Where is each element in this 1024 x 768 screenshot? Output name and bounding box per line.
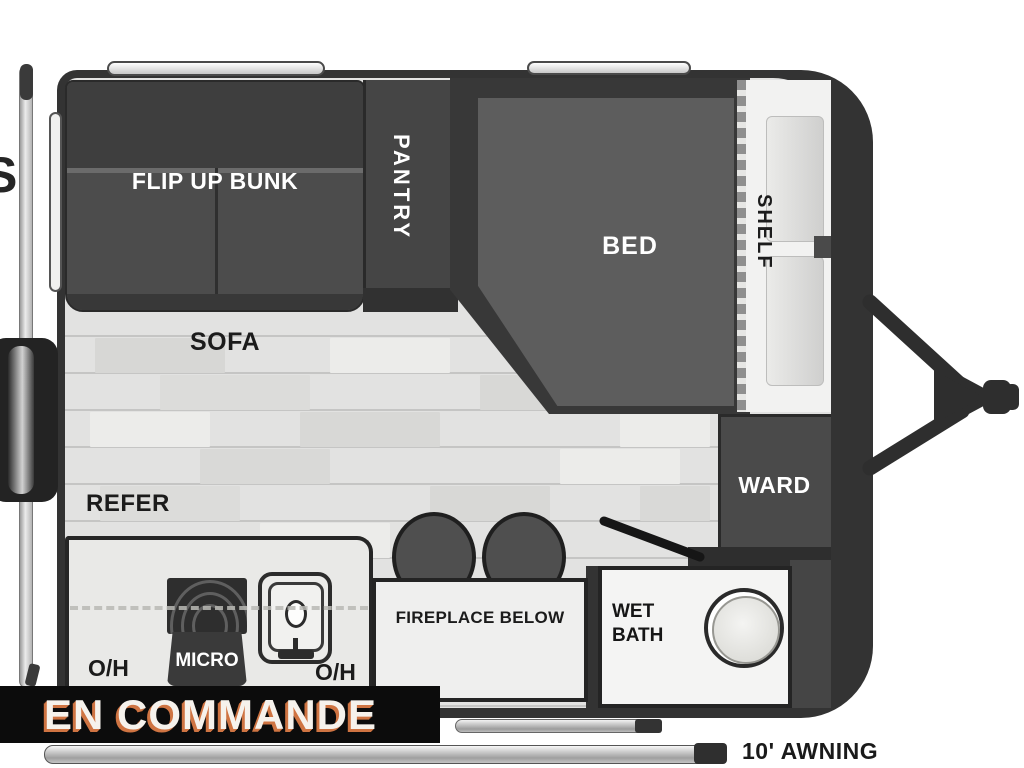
- rear-bumper-cap: [20, 64, 33, 100]
- overhead-cabinet-label-right: O/H: [315, 659, 356, 686]
- hitch-frame-lower: [870, 411, 962, 468]
- overhead-cabinet-label-left: O/H: [88, 655, 129, 682]
- floor-plank-patch: [160, 375, 310, 410]
- floor-plank-patch: [330, 338, 450, 373]
- wet-bath-label: WET BATH: [612, 600, 663, 648]
- shower-basin: [704, 588, 784, 668]
- flip-up-bunk: [65, 80, 365, 312]
- floor-plank-patch: [300, 412, 440, 447]
- wall-strip: [790, 560, 831, 708]
- bunk-backrest: [67, 82, 363, 173]
- floor-plank-patch: [560, 449, 680, 484]
- wardrobe-label: WARD: [718, 472, 831, 499]
- pantry-base: [363, 288, 458, 312]
- awning-arm-cap: [635, 719, 662, 733]
- counter-overhead-dashline: [70, 606, 368, 610]
- shelf-label: SHELF: [752, 194, 775, 270]
- refrigerator-label: REFER: [86, 490, 170, 518]
- rear-window: [49, 112, 62, 292]
- shelf-edge: [737, 80, 746, 412]
- status-banner: EN COMMANDE: [0, 686, 440, 743]
- microwave-label: MICRO: [167, 650, 247, 672]
- wet-bath-label-line1: WET: [612, 600, 663, 624]
- shelf-slab: [766, 256, 824, 386]
- floor-plank-patch: [620, 412, 710, 447]
- floor-plank-patch: [200, 449, 330, 484]
- floor-plank-patch: [90, 412, 210, 447]
- floor-plank-patch: [640, 486, 710, 521]
- sink-drain: [285, 600, 307, 628]
- fireplace-cabinet: [372, 578, 588, 702]
- bunk-front-edge: [67, 294, 363, 310]
- microwave: MICRO: [167, 578, 247, 686]
- hitch-coupler: [983, 380, 1011, 414]
- pantry-label: PANTRY: [388, 134, 414, 240]
- awning-rail: [44, 745, 727, 764]
- spare-tire-highlight: [8, 346, 34, 494]
- awning-arm: [455, 719, 662, 733]
- status-banner-text: EN COMMANDE: [44, 686, 377, 743]
- sofa-label: SOFA: [190, 328, 260, 357]
- awning-rail-cap: [694, 743, 727, 764]
- floorplan-image: FLIP UP BUNK PANTRY BED SHELF WARD MICRO…: [0, 0, 1024, 768]
- roof-vent-right: [527, 61, 691, 75]
- awning-label: 10' AWNING: [742, 738, 878, 765]
- hitch-apex: [938, 368, 992, 426]
- sink-faucet-base: [278, 650, 314, 659]
- roof-vent-left: [107, 61, 325, 76]
- shower-basin-inner: [712, 596, 780, 664]
- fireplace-label: FIREPLACE BELOW: [372, 608, 588, 628]
- flip-up-bunk-label: FLIP UP BUNK: [65, 168, 365, 195]
- wet-bath-label-line2: BATH: [612, 624, 663, 648]
- shelf-notch: [814, 236, 831, 258]
- kitchen-sink: [258, 572, 332, 664]
- hitch-frame-upper: [870, 302, 962, 386]
- bed-label: BED: [550, 232, 710, 261]
- clipped-letter-fragment: S: [0, 146, 17, 204]
- hitch-coupler-tip: [1005, 384, 1019, 410]
